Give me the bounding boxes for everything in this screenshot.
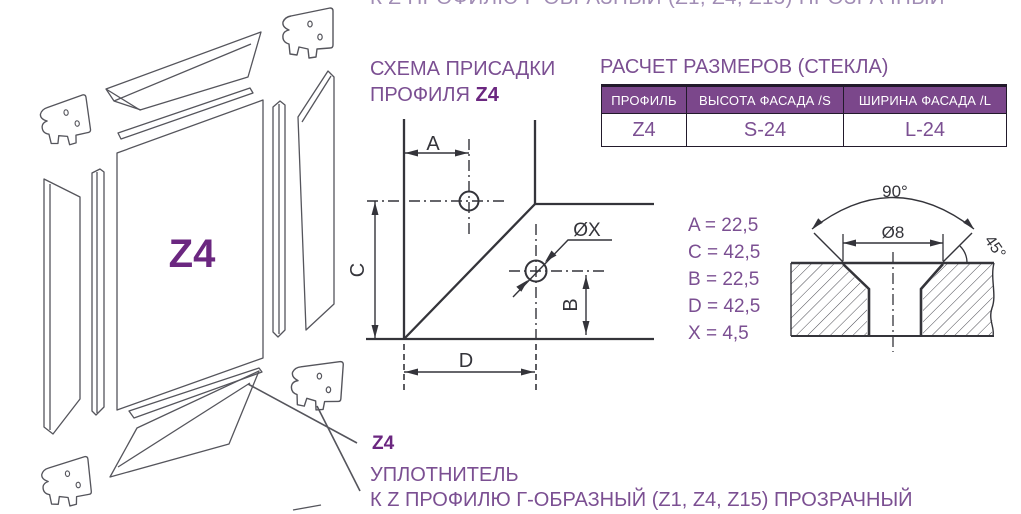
scheme-title: СХЕМА ПРИСАДКИ ПРОФИЛЯ Z4 [370,56,555,108]
scheme-title-line1: СХЕМА ПРИСАДКИ [370,56,555,82]
left-outer-profile [44,179,80,434]
dimension-values: A = 22,5 C = 42,5 B = 22,5 D = 42,5 X = … [688,212,760,347]
scheme-title-word: ПРОФИЛЯ [370,84,470,106]
col-profile: ПРОФИЛЬ [602,86,687,114]
dim-d8-label: Ø8 [882,223,905,242]
panel-label: Z4 [169,232,216,276]
corner-connector-bottom-right [290,358,343,411]
value-c: C = 42,5 [688,239,760,266]
dim-label-A: A [426,133,440,155]
scheme-title-line2: ПРОФИЛЯ Z4 [370,82,555,108]
cell-profile: Z4 [602,114,687,147]
corner-connector-left [38,95,92,149]
angle-45-arc [960,246,967,263]
dim-label-B: B [560,298,582,311]
table-header-row: ПРОФИЛЬ ВЫСОТА ФАСАДА /S ШИРИНА ФАСАДА /… [602,86,1007,114]
glass-size-table: ПРОФИЛЬ ВЫСОТА ФАСАДА /S ШИРИНА ФАСАДА /… [601,84,1007,147]
corner-connector-bottom-left [40,456,92,508]
col-facade-width: ШИРИНА ФАСАДА /L [844,86,1007,114]
value-x: X = 4,5 [688,320,760,347]
dim-X-callout [513,240,612,297]
clipped-top-text: К Z ПРОФИЛЮ Г-ОБРАЗНЫЙ (Z1, Z4, Z15) ПРО… [370,0,945,10]
cell-height: S-24 [687,114,844,147]
leader-line-2 [317,406,360,491]
right-gasket-strip [273,101,285,337]
scheme-title-code: Z4 [476,84,499,106]
product-name: УПЛОТНИТЕЛЬ [370,464,519,487]
dim-label-C: C [347,263,369,277]
drilling-scheme: A C B D [347,119,654,391]
corner-connector-top-right [283,8,333,58]
dim-label-X: ØX [573,220,601,241]
glass-table-title: РАСЧЕТ РАЗМЕРОВ (СТЕКЛА) [600,56,888,79]
exploded-view: Z4 [38,8,360,510]
table-row: Z4 S-24 L-24 [602,114,1007,147]
value-d: D = 42,5 [688,293,760,320]
value-b: B = 22,5 [688,266,760,293]
right-outer-profile [298,71,334,330]
product-code: Z4 [372,433,394,455]
countersink-section: 90° Ø8 45° [791,182,1009,352]
product-description: К Z ПРОФИЛЮ Г-ОБРАЗНЫЙ (Z1, Z4, Z15) ПРО… [370,489,913,512]
left-gasket-strip [92,169,104,415]
cell-width: L-24 [844,114,1007,147]
catalog-page: Z4 [0,0,1021,514]
col-facade-height: ВЫСОТА ФАСАДА /S [687,86,844,114]
angle-45-label: 45° [981,233,1009,263]
dim-label-D: D [459,350,473,372]
value-a: A = 22,5 [688,212,760,239]
dim-B [583,275,590,335]
angle-90-label: 90° [882,182,908,201]
dim-C [372,201,379,339]
edge-cut-mark [293,505,321,510]
